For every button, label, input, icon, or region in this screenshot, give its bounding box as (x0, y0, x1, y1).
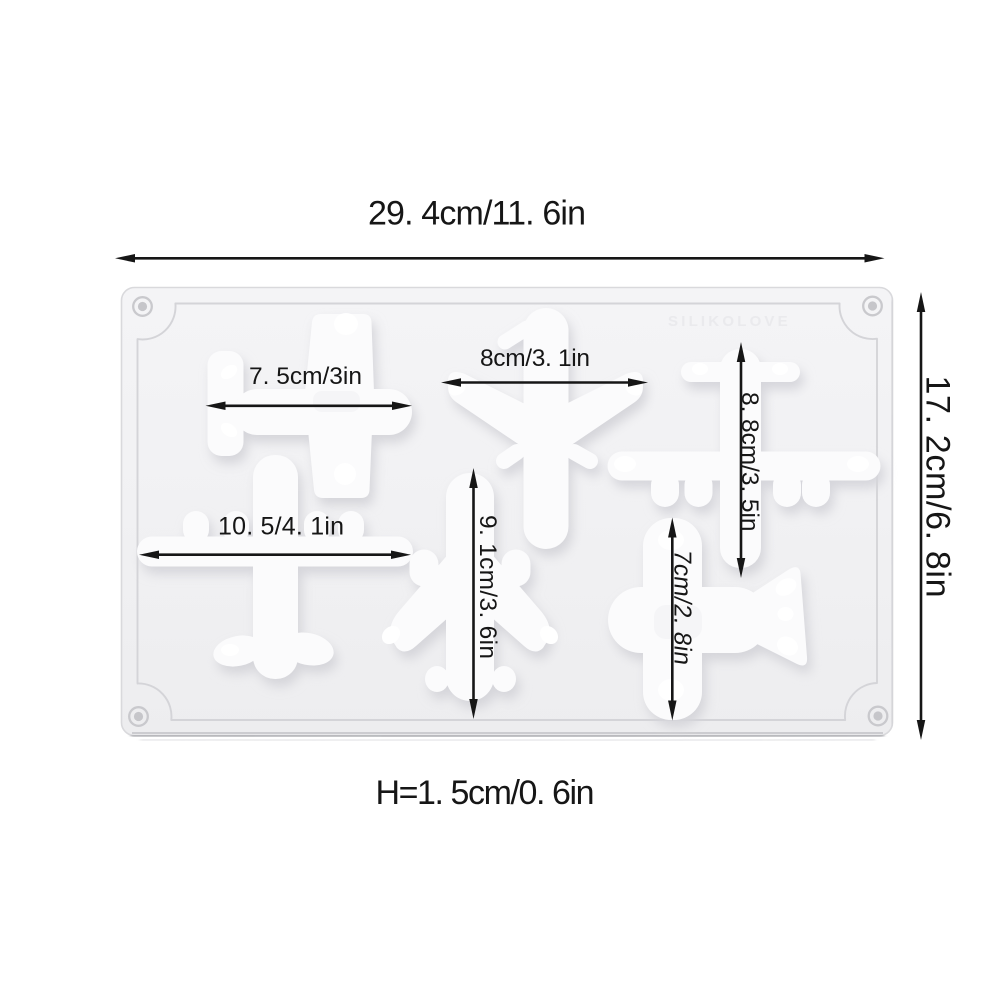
svg-text:10. 5/4. 1in: 10. 5/4. 1in (218, 513, 344, 541)
svg-text:8cm/3. 1in: 8cm/3. 1in (480, 345, 590, 372)
svg-text:7. 5cm/3in: 7. 5cm/3in (249, 363, 362, 390)
svg-text:8. 8cm/3. 5in: 8. 8cm/3. 5in (736, 392, 763, 532)
svg-text:H=1. 5cm/0. 6in: H=1. 5cm/0. 6in (376, 774, 595, 812)
svg-text:SILIKOLOVE: SILIKOLOVE (668, 313, 791, 330)
svg-text:7cm/2. 8in: 7cm/2. 8in (669, 548, 696, 667)
svg-text:29. 4cm/11. 6in: 29. 4cm/11. 6in (368, 195, 586, 233)
svg-text:9. 1cm/3. 6in: 9. 1cm/3. 6in (474, 515, 501, 659)
svg-text:17. 2cm/6. 8in: 17. 2cm/6. 8in (919, 376, 957, 598)
